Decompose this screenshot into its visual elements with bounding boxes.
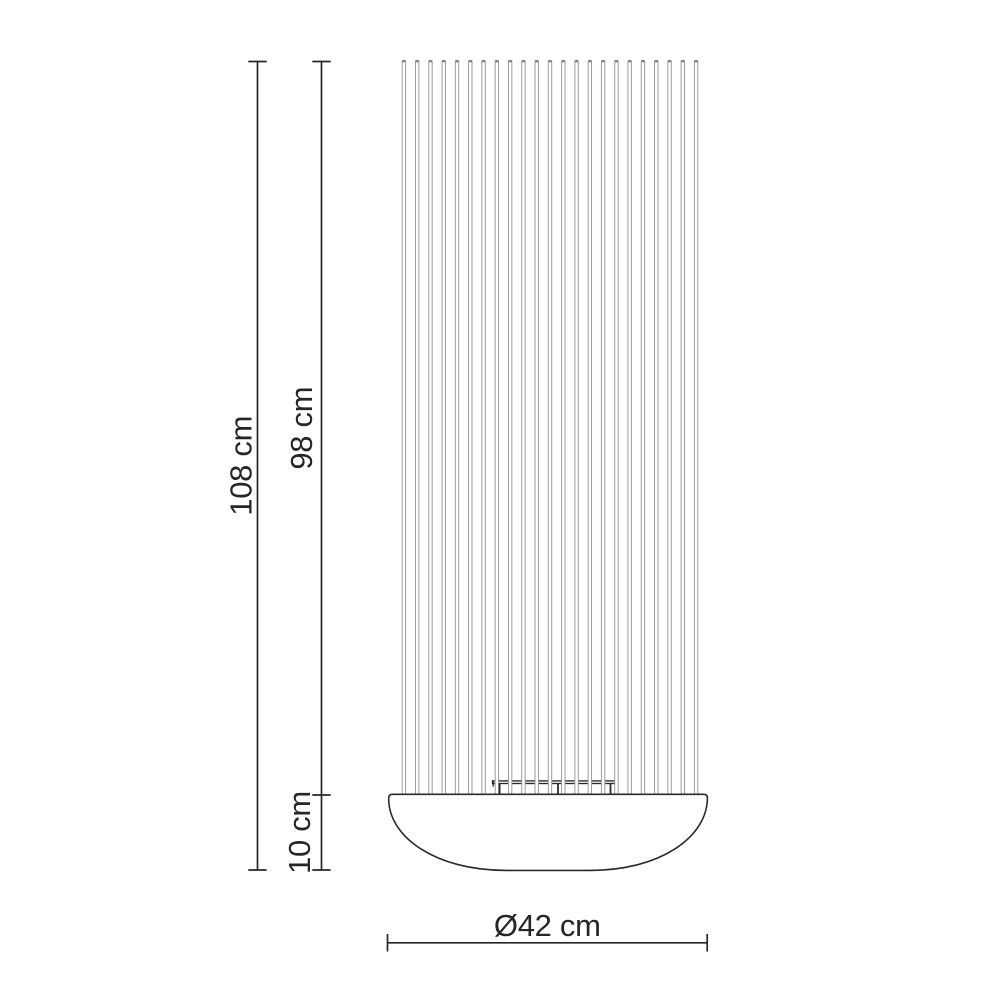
svg-text:Ø42 cm: Ø42 cm	[494, 908, 601, 943]
svg-text:108 cm: 108 cm	[224, 416, 259, 516]
svg-text:10 cm: 10 cm	[282, 791, 317, 874]
svg-text:98 cm: 98 cm	[284, 387, 319, 470]
